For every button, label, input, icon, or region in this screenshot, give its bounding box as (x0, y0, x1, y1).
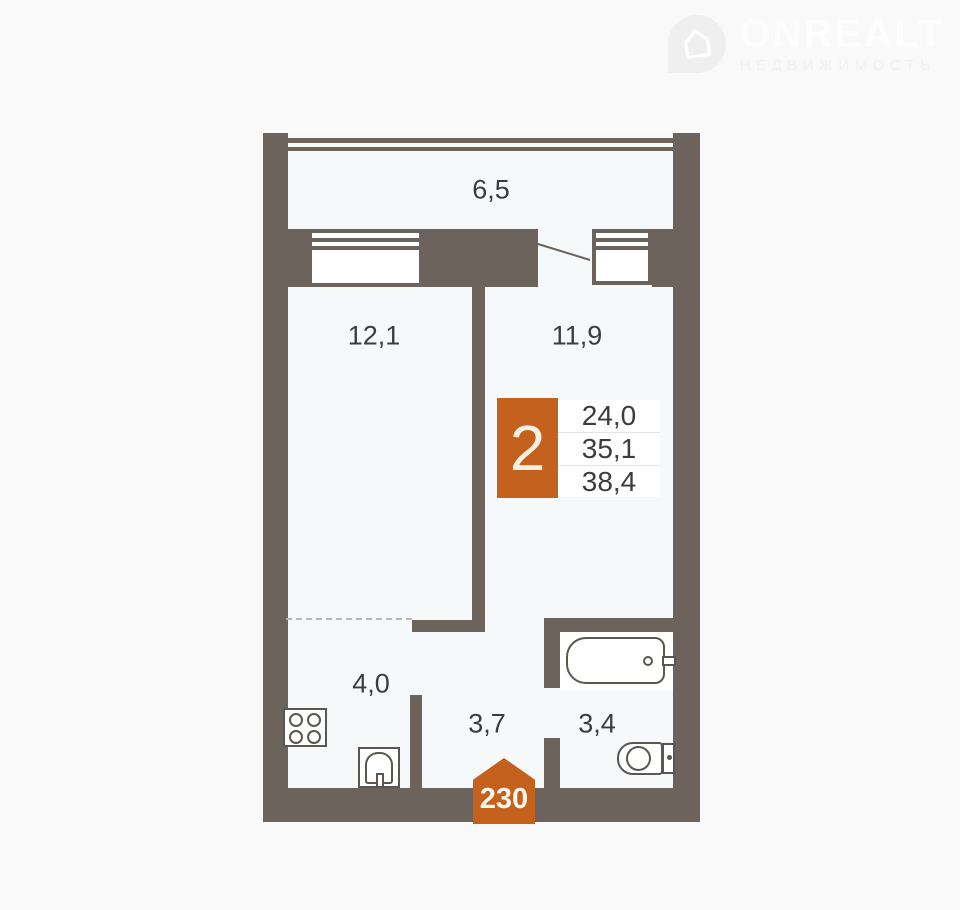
floor-plan: 6,5 12,1 11,9 4,0 3,7 3,4 2 24,0 35,1 38… (0, 0, 960, 910)
toilet-icon (617, 742, 675, 776)
area-stats-badge: 24,0 35,1 38,4 (558, 400, 660, 497)
window-frame-line (596, 246, 648, 250)
wall-divider-foot (412, 620, 485, 632)
window-room-1 (308, 229, 423, 287)
wall-balcony-band (288, 229, 308, 287)
window-frame-line (596, 238, 648, 242)
window-frame-line (312, 238, 419, 242)
sink-tap (376, 773, 384, 788)
wall-balcony-band (652, 229, 673, 287)
stat-total-area: 38,4 (558, 465, 660, 498)
wall-bathroom-stub (544, 738, 560, 788)
floorplan-page: ONREALT НЕДВИЖИМОСТЬ (0, 0, 960, 910)
wall-kitchen-stub (410, 695, 422, 788)
bathtub-faucet (662, 656, 676, 666)
stat-area: 35,1 (558, 432, 660, 465)
wall-right (673, 133, 700, 822)
wall-bathroom-left (544, 618, 560, 688)
toilet-button (667, 755, 672, 760)
area-label-bathroom: 3,4 (578, 709, 616, 740)
area-label-room-1: 12,1 (348, 321, 401, 352)
stat-living-area: 24,0 (558, 400, 660, 432)
window-room-2 (592, 229, 652, 285)
burner-icon (289, 713, 303, 727)
area-label-kitchen: 4,0 (352, 669, 390, 700)
kitchen-dashed-divider (286, 618, 412, 620)
balcony-glazing-line (288, 138, 673, 143)
wall-balcony-band (423, 229, 538, 287)
balcony-door-swing (535, 239, 595, 265)
window-frame-line (312, 246, 419, 250)
burner-icon (307, 730, 321, 744)
area-label-hallway: 3,7 (468, 709, 506, 740)
wall-bathroom-top (544, 618, 673, 632)
kitchen-sink-icon (358, 747, 400, 788)
bathtub-icon (560, 632, 673, 690)
area-label-balcony: 6,5 (472, 175, 510, 206)
bathtub-drain (643, 656, 653, 666)
burner-icon (289, 730, 303, 744)
burner-icon (307, 713, 321, 727)
balcony-glazing-line (288, 147, 673, 151)
toilet-seat (626, 746, 651, 771)
stove-icon (283, 708, 327, 747)
rooms-count-badge: 2 (497, 398, 558, 498)
area-label-room-2: 11,9 (552, 321, 603, 352)
wall-room-divider (472, 285, 485, 632)
